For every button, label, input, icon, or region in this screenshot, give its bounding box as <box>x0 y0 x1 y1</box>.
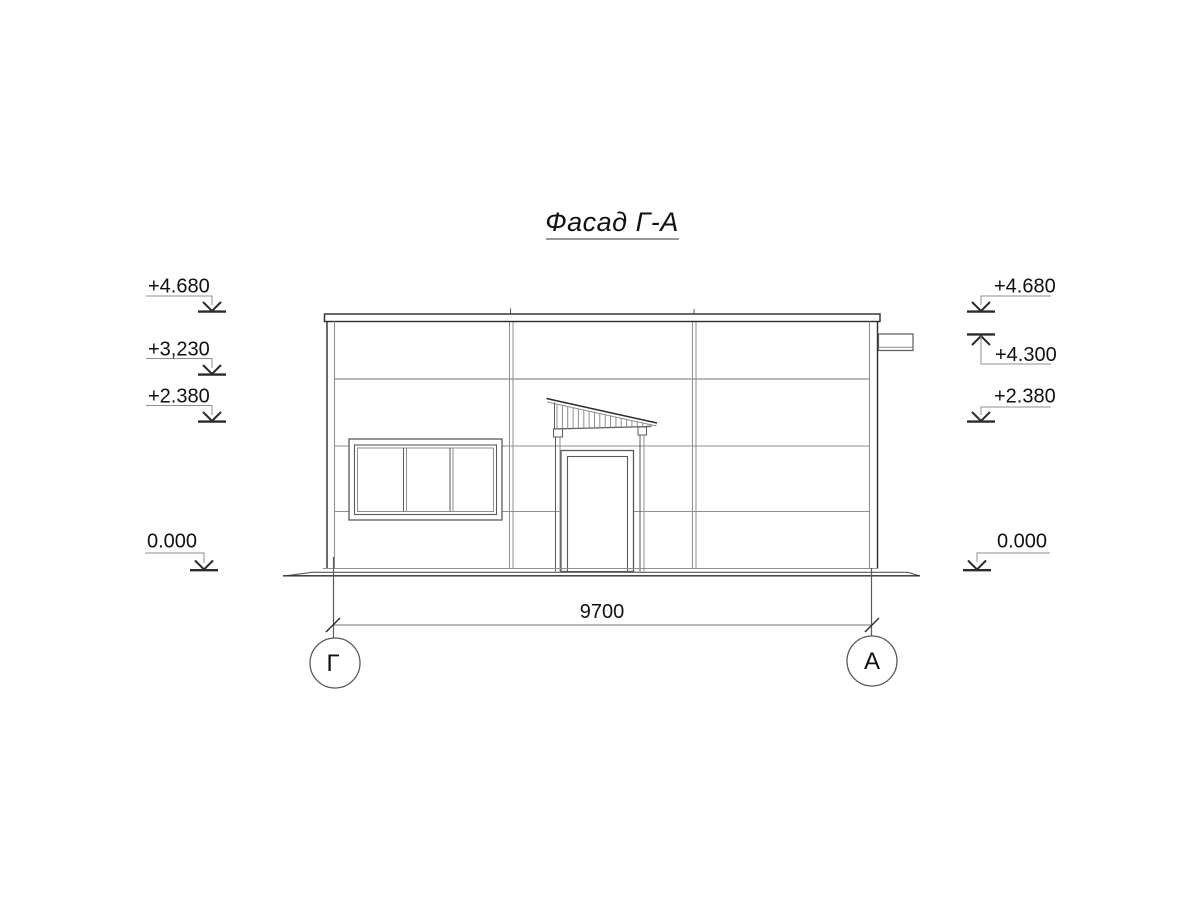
parapet-band <box>325 314 881 322</box>
level-label: +4.300 <box>995 344 1057 366</box>
canopy-post-cap-right <box>638 427 647 435</box>
level-label: 0.000 <box>147 531 197 553</box>
level-mark-right-2380: +2.380 <box>967 386 1056 422</box>
facade-elevation-sheet: Фасад Г-А <box>0 0 1200 900</box>
window <box>349 439 502 520</box>
level-mark-left-3230: +3,230 <box>146 339 226 375</box>
level-mark-left-2380: +2.380 <box>146 386 226 422</box>
level-label: +2.380 <box>994 386 1056 408</box>
entrance-door <box>561 451 634 572</box>
level-mark-left-0000: 0.000 <box>145 531 218 571</box>
level-mark-right-4300: +4.300 <box>967 334 1057 366</box>
drawing-title: Фасад Г-А <box>545 207 679 237</box>
window-frame-inner <box>358 448 494 512</box>
axis-bubble-left: Г <box>310 638 360 688</box>
facade-drawing: Фасад Г-А <box>0 0 1200 900</box>
axis-bubble-right: А <box>847 636 897 686</box>
level-label: +4.680 <box>994 276 1056 298</box>
dimension-value: 9700 <box>580 601 625 623</box>
axis-label: А <box>864 648 880 675</box>
level-mark-right-4680: +4.680 <box>967 276 1056 312</box>
level-label: +4.680 <box>148 276 210 298</box>
level-label: +2.380 <box>148 386 210 408</box>
roof-scupper <box>879 334 914 351</box>
level-label: +3,230 <box>148 339 210 361</box>
level-label: 0.000 <box>997 531 1047 553</box>
door-leaf <box>568 457 628 572</box>
canopy-post-cap-left <box>554 429 563 437</box>
level-mark-right-0000: 0.000 <box>963 531 1050 571</box>
level-mark-left-4680: +4.680 <box>146 276 226 312</box>
axis-label: Г <box>327 650 340 677</box>
